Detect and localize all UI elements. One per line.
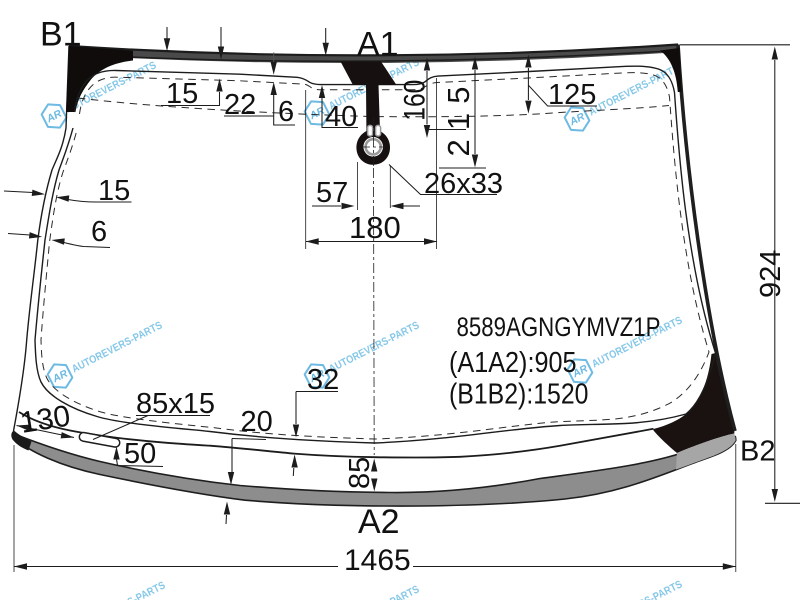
svg-text:6: 6: [278, 96, 294, 128]
svg-text:15: 15: [166, 78, 198, 110]
svg-text:22: 22: [224, 89, 256, 121]
svg-text:125: 125: [548, 79, 596, 111]
svg-text:A1: A1: [357, 26, 399, 64]
svg-text:85x15: 85x15: [136, 388, 215, 420]
svg-text:(A1A2):905: (A1A2):905: [449, 347, 577, 379]
svg-text:40: 40: [325, 101, 357, 133]
svg-text:8589AGNGYMVZ1P: 8589AGNGYMVZ1P: [457, 312, 661, 342]
svg-text:32: 32: [307, 364, 339, 396]
svg-text:6: 6: [91, 216, 107, 248]
svg-text:B1: B1: [40, 16, 82, 54]
svg-text:B2: B2: [740, 436, 775, 468]
svg-text:A2: A2: [358, 503, 400, 541]
svg-text:20: 20: [241, 406, 273, 438]
svg-text:(B1B2):1520: (B1B2):1520: [449, 379, 589, 411]
svg-text:15: 15: [98, 175, 130, 207]
svg-text:160: 160: [399, 80, 432, 121]
svg-text:924: 924: [755, 250, 787, 298]
svg-text:180: 180: [349, 210, 401, 245]
svg-text:26x33: 26x33: [424, 168, 503, 200]
svg-text:50: 50: [124, 438, 156, 470]
svg-text:1465: 1465: [344, 544, 411, 577]
svg-text:57: 57: [316, 177, 348, 209]
svg-text:85: 85: [344, 457, 376, 489]
svg-text:215: 215: [441, 87, 476, 157]
